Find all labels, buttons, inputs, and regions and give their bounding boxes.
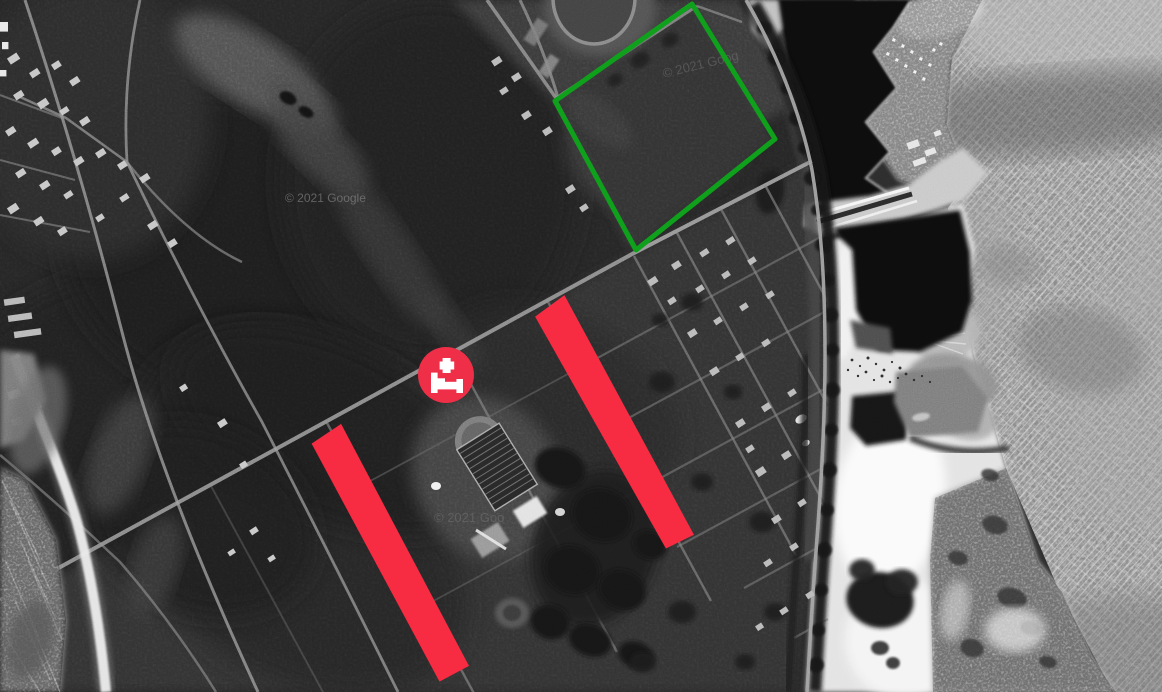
svg-text:© 2021 Goo: © 2021 Goo xyxy=(434,510,504,525)
svg-text:© 2021 Google: © 2021 Google xyxy=(285,191,366,205)
